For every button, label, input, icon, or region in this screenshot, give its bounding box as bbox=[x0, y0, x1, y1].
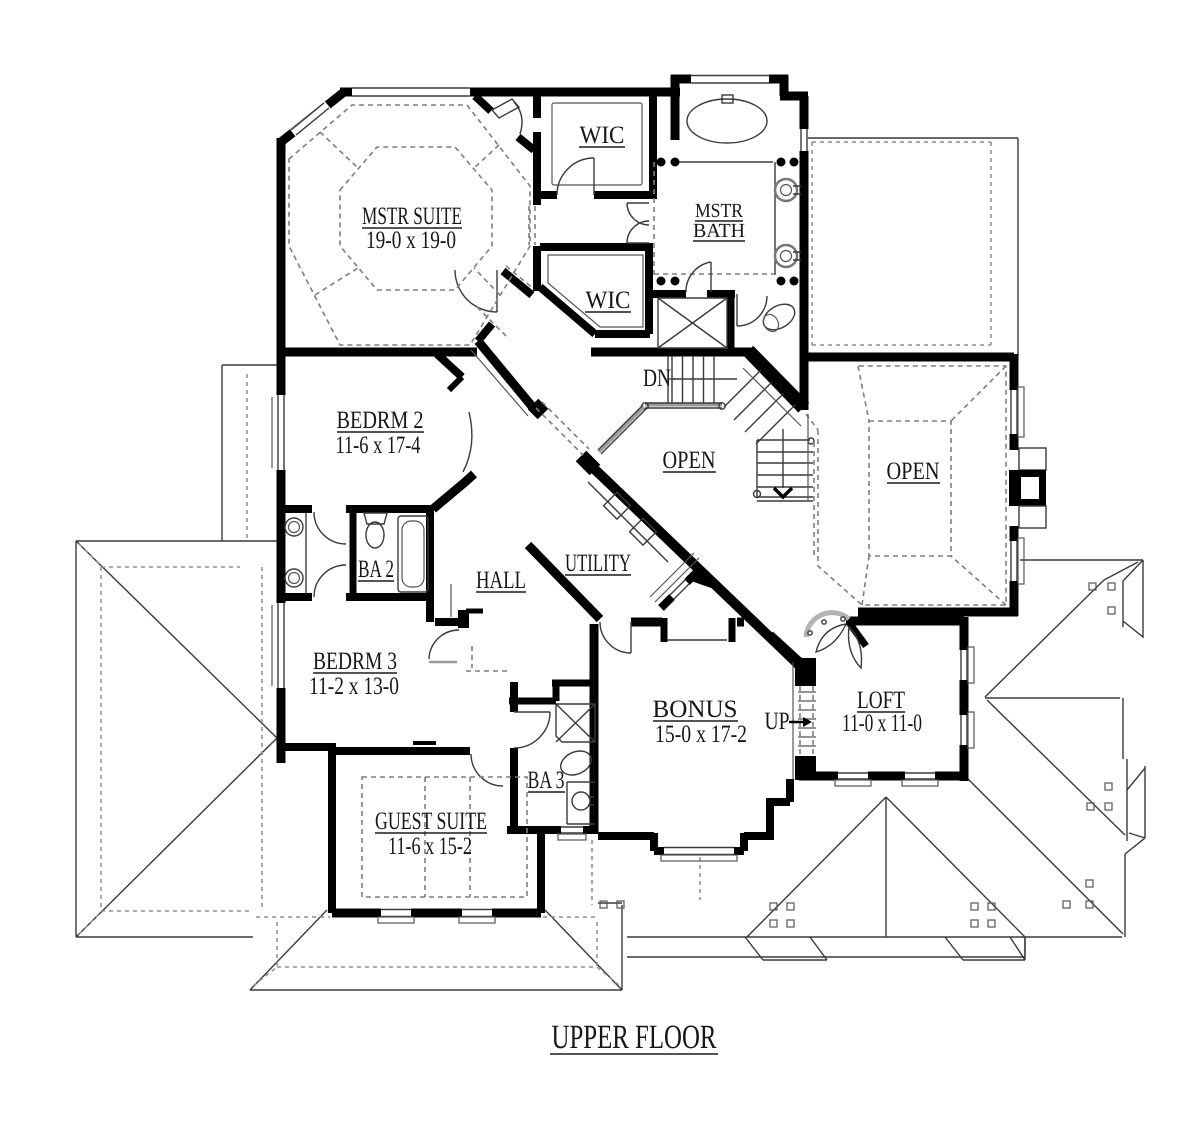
svg-text:11-6 x 15-2: 11-6 x 15-2 bbox=[388, 833, 472, 860]
svg-text:11-2 x 13-0: 11-2 x 13-0 bbox=[309, 673, 399, 700]
svg-text:MSTR: MSTR bbox=[695, 200, 744, 222]
svg-text:15-0 x 17-2: 15-0 x 17-2 bbox=[655, 721, 747, 748]
svg-text:11-6 x 17-4: 11-6 x 17-4 bbox=[336, 432, 421, 459]
svg-text:BEDRM 3: BEDRM 3 bbox=[313, 648, 397, 675]
svg-text:WIC: WIC bbox=[580, 122, 625, 149]
svg-text:UPPER FLOOR: UPPER FLOOR bbox=[552, 1019, 717, 1056]
svg-text:GUEST SUITE: GUEST SUITE bbox=[375, 808, 487, 835]
svg-text:OPEN: OPEN bbox=[663, 447, 716, 474]
svg-text:DN: DN bbox=[643, 365, 671, 392]
svg-text:HALL: HALL bbox=[476, 567, 526, 594]
svg-text:11-0 x 11-0: 11-0 x 11-0 bbox=[842, 710, 922, 737]
svg-text:OPEN: OPEN bbox=[887, 458, 940, 485]
svg-text:BONUS: BONUS bbox=[653, 696, 738, 723]
svg-text:19-0 x 19-0: 19-0 x 19-0 bbox=[366, 227, 456, 254]
svg-text:UP: UP bbox=[765, 708, 790, 735]
svg-text:BATH: BATH bbox=[693, 220, 745, 242]
svg-text:MSTR SUITE: MSTR SUITE bbox=[362, 203, 462, 230]
svg-text:BA 2: BA 2 bbox=[358, 556, 394, 583]
svg-text:BEDRM 2: BEDRM 2 bbox=[337, 407, 424, 434]
svg-text:WIC: WIC bbox=[586, 287, 631, 314]
svg-text:UTILITY: UTILITY bbox=[565, 550, 631, 577]
svg-text:BA 3: BA 3 bbox=[528, 767, 565, 794]
